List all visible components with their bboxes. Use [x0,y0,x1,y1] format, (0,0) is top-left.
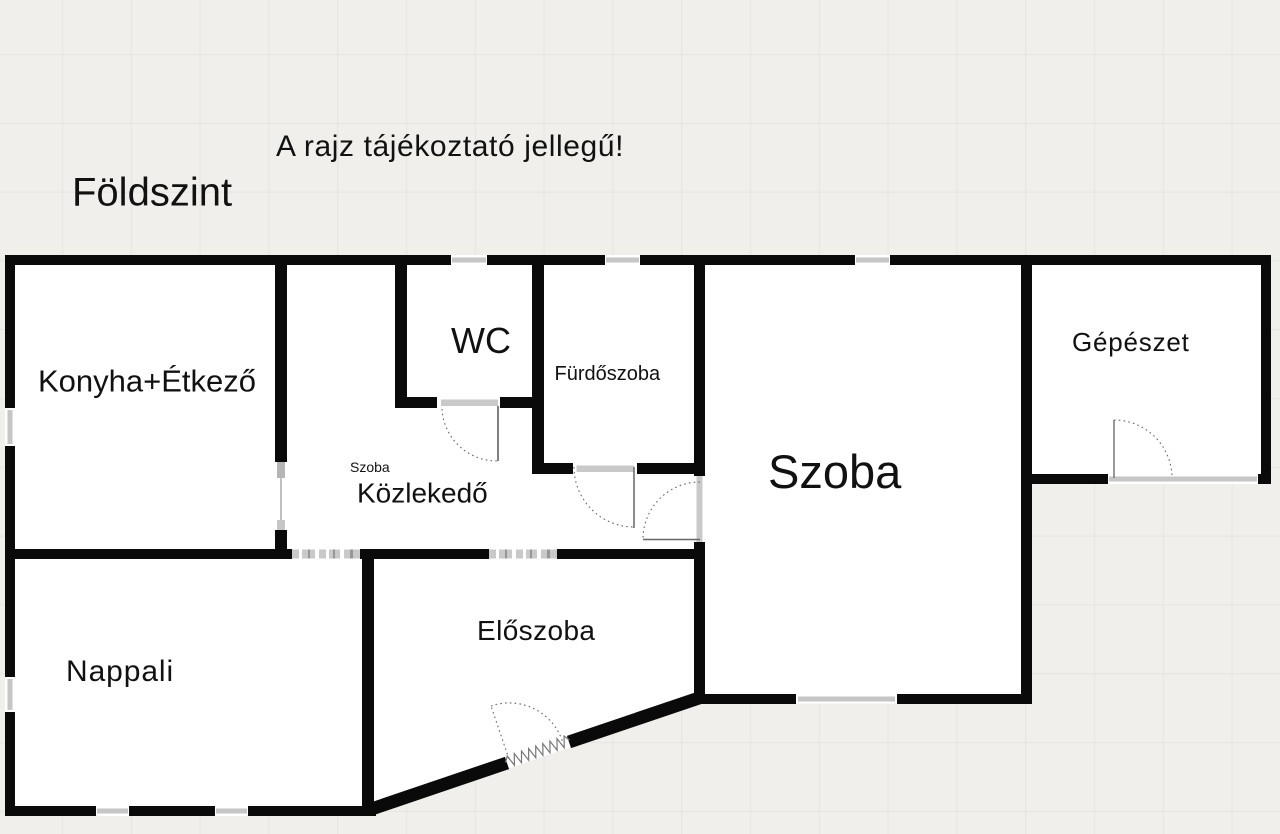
svg-text:Konyha+Étkező: Konyha+Étkező [38,364,256,399]
svg-text:Földszint: Földszint [72,171,232,215]
svg-text:Előszoba: Előszoba [477,615,595,646]
svg-text:WC: WC [451,320,511,361]
svg-text:Nappali: Nappali [66,655,174,688]
svg-text:Gépészet: Gépészet [1072,327,1190,357]
svg-text:Szoba: Szoba [350,459,390,475]
svg-text:Szoba: Szoba [768,445,902,498]
svg-text:A rajz tájékoztató jellegű!: A rajz tájékoztató jellegű! [276,130,624,163]
svg-text:Fürdőszoba: Fürdőszoba [555,363,661,385]
svg-text:Közlekedő: Közlekedő [357,478,488,509]
